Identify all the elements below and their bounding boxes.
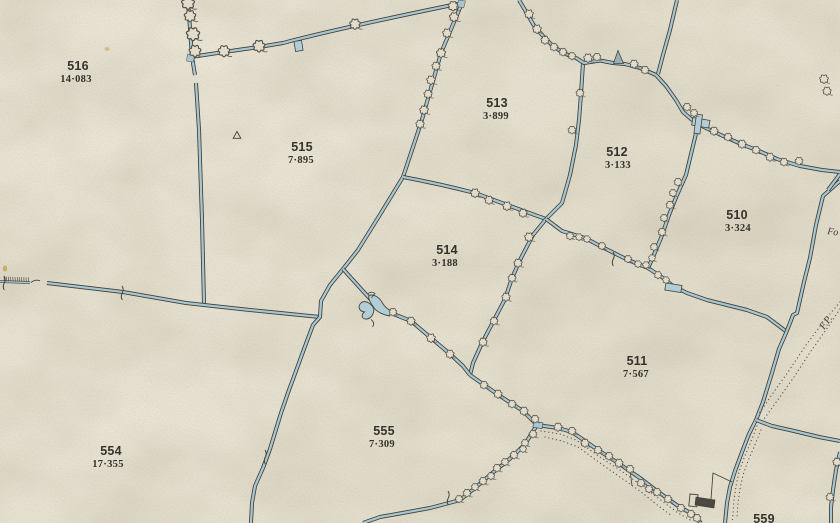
svg-text:3·899: 3·899 bbox=[483, 111, 509, 122]
svg-text:554: 554 bbox=[100, 444, 121, 458]
svg-text:511: 511 bbox=[627, 354, 648, 368]
svg-text:3·188: 3·188 bbox=[432, 258, 458, 269]
svg-text:Fo: Fo bbox=[826, 226, 840, 239]
svg-text:555: 555 bbox=[373, 424, 394, 438]
svg-text:512: 512 bbox=[606, 145, 627, 159]
svg-text:515: 515 bbox=[291, 140, 312, 154]
svg-text:7·895: 7·895 bbox=[288, 155, 314, 166]
svg-text:514: 514 bbox=[436, 243, 457, 257]
svg-text:3·324: 3·324 bbox=[725, 223, 751, 234]
svg-text:559: 559 bbox=[753, 512, 774, 523]
svg-text:17·355: 17·355 bbox=[92, 459, 124, 470]
svg-text:3·133: 3·133 bbox=[605, 160, 631, 171]
svg-text:7·567: 7·567 bbox=[623, 369, 649, 380]
svg-text:14·083: 14·083 bbox=[60, 74, 92, 85]
svg-text:510: 510 bbox=[726, 208, 747, 222]
svg-text:513: 513 bbox=[486, 96, 507, 110]
svg-text:516: 516 bbox=[67, 59, 88, 73]
svg-text:7·309: 7·309 bbox=[369, 439, 395, 450]
